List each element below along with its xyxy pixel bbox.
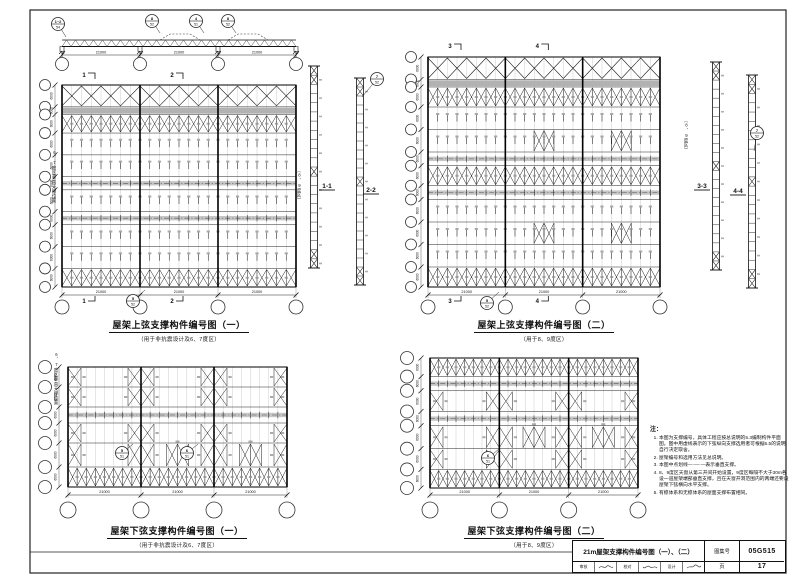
grid-bubble — [422, 502, 438, 518]
grid-bubble — [40, 149, 51, 160]
label: 6000 — [416, 155, 420, 162]
grid-bubble — [401, 384, 414, 397]
label: 6000 — [50, 254, 54, 261]
grid-bubble — [498, 300, 512, 314]
plan3-title: 屋架下弦支撑构件编号图（一） — [107, 524, 246, 539]
atlas-number-value: 05G515 — [739, 541, 784, 561]
grid-bubble — [401, 405, 414, 418]
label: 51 — [120, 455, 124, 459]
plan-upper-chord-2: 6000600060006000600060006000600060006000… — [406, 44, 668, 314]
label: 52 — [485, 305, 489, 309]
label: 2-2 — [366, 187, 376, 194]
plan-lower-chord-1: 6000600060006000600060002100021000210005… — [39, 361, 296, 519]
label: 6000 — [54, 473, 58, 480]
label: 4 — [536, 44, 540, 50]
linework — [176, 296, 183, 301]
label: 51 — [185, 455, 189, 459]
label: 1 — [82, 73, 86, 79]
grid-bubble — [406, 52, 417, 63]
label: 6000 — [416, 172, 420, 179]
label: 52 — [375, 81, 379, 85]
label: 6000 — [416, 364, 420, 371]
grid-bubble — [576, 300, 590, 314]
label: 3 — [448, 44, 452, 50]
zone-label-89-mid: （8、9度区） — [296, 168, 302, 228]
grid-bubble — [39, 381, 52, 394]
grid-bubble — [133, 502, 149, 518]
label: 3-3 — [697, 183, 707, 190]
label: 3 — [448, 299, 452, 305]
label: 52 — [226, 23, 230, 27]
section-strip-3-3: 3-3 — [694, 62, 724, 270]
linework — [749, 75, 756, 288]
label: 6000 — [416, 252, 420, 259]
grid-bubble — [630, 502, 646, 518]
label: 21000 — [459, 490, 470, 494]
drawing-sheet: 2100021000210001~25485245185260006000600… — [0, 0, 800, 580]
section-strip-1-1: 1-1 — [308, 66, 335, 268]
grid-bubble — [406, 217, 417, 228]
label: 1-1 — [322, 183, 332, 190]
label: 21000 — [529, 490, 540, 494]
grid-bubble — [211, 300, 225, 314]
label: 6000 — [416, 229, 420, 236]
label: 6000 — [416, 433, 420, 440]
grid-bubble — [406, 239, 417, 250]
label: 4 — [536, 299, 540, 305]
linework — [176, 73, 183, 79]
signature-scribble — [638, 562, 660, 572]
label: 1 — [82, 299, 86, 305]
truss-elevation: 2100021000210001~254852451852 — [52, 15, 303, 71]
label: 6000 — [416, 207, 420, 214]
page-number: 17 — [739, 561, 784, 572]
grid-bubble — [39, 481, 52, 494]
notes-list: 本图为支撑编号，具体工程应按总说明的5.3编制构件平面图。图中用虚线表示的下弦纵… — [650, 436, 790, 497]
sheet-title: 21m屋架支撑构件编号图（一）、（二） — [573, 541, 704, 561]
label: 6000 — [416, 397, 420, 404]
signature-row: 审核 校对 设计 — [573, 561, 704, 572]
note-item: 本图中点划线—·—·—表示垂直支撑。 — [659, 463, 790, 469]
label: 21000 — [96, 51, 107, 55]
label: 52 — [755, 135, 759, 139]
label: 52 — [150, 23, 154, 27]
label: 21000 — [598, 490, 609, 494]
label: 54 — [56, 26, 60, 30]
label: 52 — [131, 303, 135, 307]
label: 6000 — [416, 114, 420, 121]
linework — [713, 62, 720, 270]
grid-bubble — [40, 128, 51, 139]
grid-bubble — [401, 419, 414, 432]
label: 6000 — [416, 475, 420, 482]
label: 6000 — [416, 79, 420, 86]
label: 6000 — [50, 140, 54, 147]
note-item: 本图为支撑编号，具体工程应按总说明的5.3编制构件平面图。图中用虚线表示的下弦纵… — [659, 436, 790, 454]
label: 6000 — [54, 451, 58, 458]
linework — [541, 44, 548, 50]
plan3-subtitle: （用于非抗震设计及6、7度区） — [77, 541, 277, 549]
grid-bubble — [56, 58, 69, 71]
linework — [319, 80, 322, 264]
role-label-jiaodui: 校对 — [616, 562, 638, 572]
zone-label-89-right: （8、9度区） — [683, 118, 689, 178]
label: 21000 — [539, 290, 550, 294]
notes-heading: 注： — [650, 427, 790, 435]
label: 6000 — [416, 64, 420, 71]
plan1-subtitle: （用于非抗震设计及6、7度区） — [79, 335, 279, 343]
grid-bubble — [206, 502, 222, 518]
label: 6000 — [416, 273, 420, 280]
signature-scribble — [682, 562, 704, 572]
role-label-shenhe: 审核 — [573, 562, 594, 572]
linework — [454, 44, 461, 50]
label: 21000 — [172, 490, 183, 494]
label: 21000 — [245, 490, 256, 494]
label: 21000 — [461, 290, 472, 294]
linework — [721, 76, 724, 257]
title-block: 21m屋架支撑构件编号图（一）、（二） 图集号 05G515 审核 校对 设计 … — [572, 540, 786, 573]
label: 21000 — [96, 290, 107, 294]
grid-bubble — [653, 300, 667, 314]
linework — [357, 78, 364, 285]
plan3-title-block: 屋架下弦支撑构件编号图（一） （用于非抗震设计及6、7度区） — [77, 521, 277, 549]
grid-bubble — [401, 370, 414, 383]
plan1-title: 屋架上弦支撑构件编号图（一） — [109, 318, 248, 333]
atlas-number-label: 图集号 — [704, 541, 739, 561]
grid-bubble — [39, 437, 52, 450]
label: 21000 — [174, 290, 185, 294]
plan4-title: 屋架下弦支撑构件编号图（二） — [464, 524, 603, 539]
grid-bubble — [39, 417, 52, 430]
linework — [454, 296, 461, 301]
grid-bubble — [40, 282, 51, 293]
label: 6000 — [416, 189, 420, 196]
grid-bubble — [406, 282, 417, 293]
notes: 注： 本图为支撑编号，具体工程应按总说明的5.3编制构件平面图。图中用虚线表示的… — [650, 427, 790, 498]
linework — [88, 296, 95, 301]
plan-upper-chord-1: 6000600060006000600060006000600060006000… — [40, 73, 304, 314]
grid-bubble — [401, 442, 414, 455]
grid-bubble — [290, 58, 303, 71]
section-strip-2-2: 2-2752 — [354, 73, 384, 286]
page-label: 页 — [704, 561, 739, 572]
label: 51 — [486, 460, 490, 464]
role-label-sheji: 设计 — [660, 562, 682, 572]
label: 6000 — [50, 92, 54, 99]
linework — [541, 296, 548, 301]
zone-label-67-lower: 6、7度区垂直支撑位置 — [53, 352, 59, 442]
grid-bubble — [421, 300, 435, 314]
plan2-title: 屋架上弦支撑构件编号图（二） — [474, 318, 613, 333]
signature-scribble — [594, 562, 616, 572]
note-item: 屋架编号和选用方法见总说明。 — [659, 456, 790, 462]
label: 6000 — [50, 107, 54, 114]
grid-bubble — [401, 463, 414, 476]
grid-bubble — [212, 58, 225, 71]
label: 6000 — [416, 137, 420, 144]
grid-bubble — [40, 241, 51, 252]
linework — [757, 89, 760, 274]
grid-bubble — [406, 262, 417, 273]
grid-bubble — [401, 482, 414, 495]
label: 6000 — [416, 455, 420, 462]
label: 21000 — [616, 290, 627, 294]
grid-bubble — [401, 352, 414, 365]
grid-bubble — [406, 124, 417, 135]
linework — [311, 66, 318, 268]
label: 6000 — [416, 380, 420, 387]
section-strip-4-4: 4-4752 — [730, 75, 764, 288]
label: 51 — [194, 23, 198, 27]
note-item: 8、9度区天窗从第三开间开始设置，9度区每隔不大于30m各设一道屋架端部垂直支撑… — [659, 471, 790, 489]
grid-bubble — [491, 502, 507, 518]
linework — [365, 92, 368, 272]
grid-bubble — [279, 502, 295, 518]
grid-bubble — [406, 102, 417, 113]
linework — [160, 34, 268, 40]
plan2-subtitle: （用于8、9度区） — [444, 335, 644, 343]
linework — [439, 358, 630, 488]
zone-label-67-upper: 6、7度区垂直支撑位置 — [51, 150, 57, 240]
plan1-title-block: 屋架上弦支撑构件编号图（一） （用于非抗震设计及6、7度区） — [79, 315, 279, 343]
grid-bubble — [40, 263, 51, 274]
label: 21000 — [174, 51, 185, 55]
label: 6000 — [416, 415, 420, 422]
note-item: 有檩体系和无檩体系的屋面支撑布置相同。 — [659, 491, 790, 497]
grid-bubble — [561, 502, 577, 518]
label: 21000 — [252, 51, 263, 55]
label: 21000 — [252, 290, 263, 294]
label: 4-4 — [733, 188, 743, 195]
skylight-band — [428, 80, 660, 86]
grid-bubble — [40, 80, 51, 91]
grid-bubble — [39, 361, 52, 374]
grid-bubble — [55, 300, 69, 314]
label: 1~2 — [55, 19, 63, 24]
grid-bubble — [39, 401, 52, 414]
linework — [62, 40, 296, 47]
label: 6000 — [50, 120, 54, 127]
label: 21000 — [99, 490, 110, 494]
grid-bubble — [289, 300, 303, 314]
grid-bubble — [60, 502, 76, 518]
plan2-title-block: 屋架上弦支撑构件编号图（二） （用于8、9度区） — [444, 315, 644, 343]
skylight-band — [62, 108, 296, 114]
label: 2 — [170, 299, 174, 305]
linework — [88, 73, 95, 79]
grid-bubble — [134, 58, 147, 71]
label: 6000 — [50, 274, 54, 281]
grid-bubble — [39, 461, 52, 474]
plan-lower-chord-2: 6000600060006000600060006000210002100021… — [401, 352, 647, 519]
label: 6000 — [416, 93, 420, 100]
label: 2 — [170, 73, 174, 79]
